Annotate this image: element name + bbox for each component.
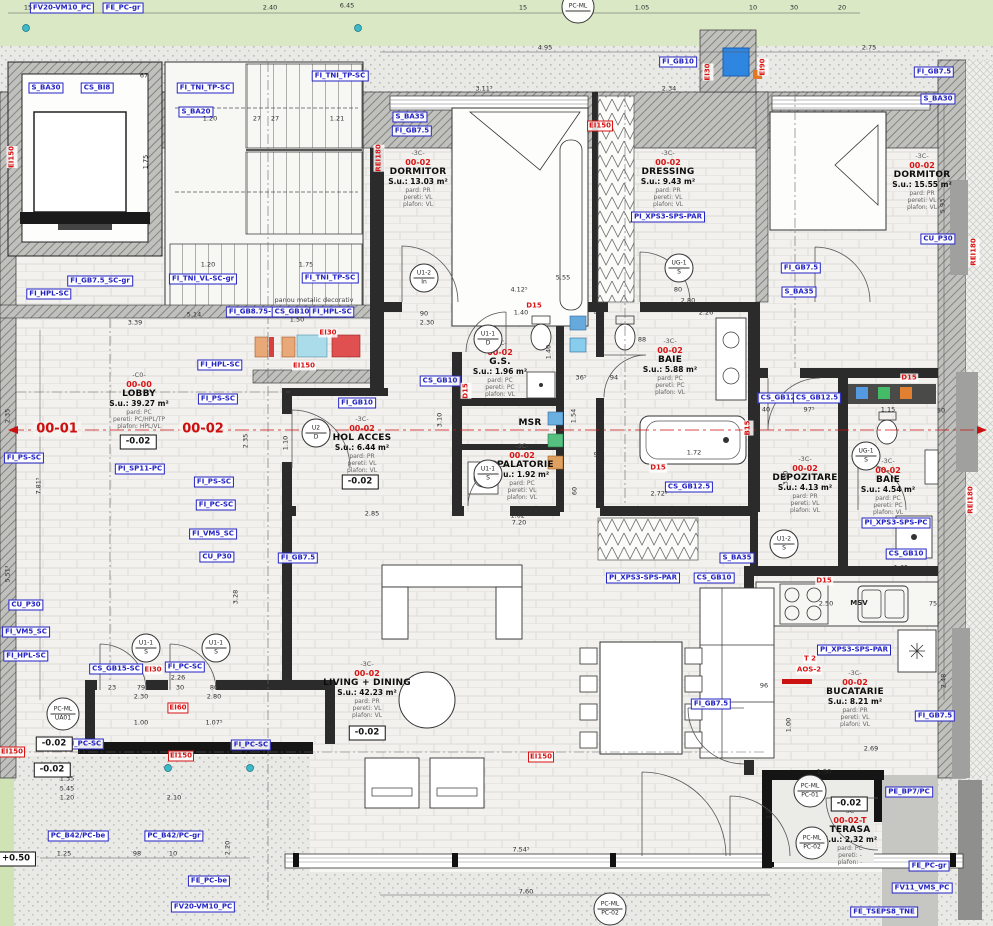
door-tag-code: U1-1 (477, 331, 499, 340)
dimension-text: 15 (24, 5, 32, 12)
door-tag: UG-1S (665, 254, 694, 283)
room-code: 00-02 (353, 158, 483, 167)
room-grade: -3C- (857, 153, 987, 161)
finish-code-label: FI_VM5_SC (189, 529, 237, 540)
dimension-text: 88 (638, 337, 646, 344)
dimension-text: 2.80 (681, 298, 695, 305)
room-code: 00-02 (790, 678, 920, 687)
door-tag-sub: D (305, 434, 327, 442)
dimension-text: 2.34 (662, 86, 676, 93)
dimension-text: 50 (937, 408, 945, 415)
finish-code-label: PI_XPS3-SPS-PC (862, 518, 931, 529)
room-code: 00-02 (457, 451, 587, 460)
dimension-text: 94 (610, 375, 618, 382)
finish-code-label: PI_SP11-PC (115, 464, 165, 475)
fire-rating-label: EI150 (587, 121, 613, 132)
elevation-marker: +0.50 (0, 852, 36, 867)
dimension-text: 1.72 (687, 450, 701, 457)
finish-code-label: FI_GB7.5 (914, 67, 954, 78)
finish-code-label: FI_HPL-SC (309, 307, 354, 318)
dimension-text: 2.75 (862, 45, 876, 52)
dimension-text: 1.75 (299, 262, 313, 269)
fire-rating-label: T 2 (803, 655, 817, 664)
finish-code-label: PC_B42/PC-gr (144, 831, 203, 842)
door-tag-sub: S (855, 457, 877, 465)
dimension-text: 1.54 (571, 409, 578, 423)
fire-rating-label: EI30 (143, 666, 162, 675)
finish-code-label: CU_P30 (920, 234, 955, 245)
dimension-text: 1.15 (881, 407, 895, 414)
dimension-text: 1.10 (283, 436, 290, 450)
finish-code-label: FI_PC-SC (231, 740, 271, 751)
dimension-text: 1.00 (134, 720, 148, 727)
room-label-block: -3C-00-02BAIES.u.: 5.88 m²pard: PCpereti… (605, 338, 735, 396)
room-area: S.u.: 13.03 m² (353, 178, 483, 187)
finish-code-label: PI_XPS3-SPS-PAR (817, 645, 891, 656)
door-tag-code: UG-1 (668, 260, 690, 269)
room-code: 00-02 (823, 466, 953, 475)
section-axis-label: 00-02 (179, 422, 227, 437)
room-label-block: -3C-00-02BUCATARIES.u.: 8.21 m²pard: PRp… (790, 670, 920, 728)
finish-code-label: FI_PS-SC (194, 477, 234, 488)
room-plafon: plafon: VL (790, 721, 920, 728)
room-plafon: plafon: VL (823, 509, 953, 516)
dimension-text: 3.11⁵ (475, 86, 492, 93)
finish-code-label: FI_TNI_VL-SC-gr (169, 274, 237, 285)
dimension-text: 1.07⁵ (205, 720, 222, 727)
room-pard: pard: PR (297, 453, 427, 460)
elevation-marker: -0.02 (349, 726, 386, 741)
room-pard: pard: PR (790, 707, 920, 714)
dimension-text: 98 (133, 851, 141, 858)
finish-code-label: PC_B42/PC-be (48, 831, 109, 842)
fire-rating-label: EI90 (758, 58, 769, 75)
dimension-text: 1.00 (786, 718, 793, 732)
dimension-text: 5.45 (60, 786, 74, 793)
dimension-text: 7.20 (512, 520, 526, 527)
room-label-block: -3C-00-02LIVING + DININGS.u.: 42.23 m²pa… (302, 661, 432, 719)
door-tag: PC-MLUA01 (47, 698, 80, 731)
room-pereti: pereti: VL (790, 714, 920, 721)
fire-rating-label: EI30 (703, 63, 714, 80)
room-code: 00-02 (302, 669, 432, 678)
dimension-text: 1.0 (766, 809, 773, 819)
room-plafon: plafon: VL (857, 204, 987, 211)
door-tag-code: U1-1 (135, 640, 157, 649)
door-tag-sub: PC-02 (800, 844, 825, 852)
finish-code-label: CS_BI8 (81, 83, 114, 94)
dimension-text: 1.25 (57, 851, 71, 858)
finish-code-label: FI_GB7.5 (392, 126, 432, 137)
room-area: S.u.: 8.21 m² (790, 698, 920, 707)
fire-rating-label: EI150 (0, 747, 25, 758)
finish-code-label: FI_GB7.5_SC-gr (67, 276, 133, 287)
dimension-text: 1.50 (290, 317, 304, 324)
finish-code-label: S_BA35 (781, 287, 816, 298)
dimension-text: 1.20 (203, 116, 217, 123)
finish-code-label: PI_XPS3-SPS-PAR (606, 573, 680, 584)
door-tag: U1-1D (474, 325, 503, 354)
door-tag: PC-ML (562, 0, 595, 24)
room-pard: pard: PC (74, 409, 204, 416)
room-pard: pard: PR (857, 190, 987, 197)
fire-rating-label: D15 (461, 383, 472, 399)
fire-rating-label: B15 (743, 420, 754, 435)
annotation-note: panou metalic decorativ (274, 296, 353, 304)
room-plafon: plafon: VL (297, 467, 427, 474)
finish-code-label: FI_HPL-SC (197, 360, 242, 371)
room-label-block: -3C-00-02DORMITORS.u.: 13.03 m²pard: PRp… (353, 150, 483, 208)
door-tag-sub: PC-01 (798, 792, 823, 800)
room-pereti: pereti: VL (297, 460, 427, 467)
room-grade: -3C- (603, 150, 733, 158)
fire-rating-label: EI150 (7, 146, 18, 168)
finish-code-label: CU_P30 (8, 600, 43, 611)
room-grade: -3C- (457, 443, 587, 451)
finish-code-label: FE_PC-be (188, 876, 230, 887)
finish-code-label: FI_TNI_TP-SC (302, 273, 359, 284)
dimension-text: 3.10 (437, 413, 444, 427)
finish-code-label: FE_TSEPS8_TNE (850, 907, 918, 918)
fire-rating-label: REI180 (966, 486, 977, 513)
door-tag-code: U2 (305, 425, 327, 434)
finish-code-label: S_BA30 (28, 83, 63, 94)
door-tag-sub: UA01 (51, 715, 76, 723)
finish-code-label: FI_GB10 (338, 398, 376, 409)
finish-code-label: FI_VM5_SC (2, 627, 50, 638)
dimension-text: 3.28 (233, 590, 240, 604)
annotation-note: MSV (850, 599, 867, 607)
dimension-text: 1.21 (330, 116, 344, 123)
finish-code-label: FI_HPL-SC (3, 651, 48, 662)
dimension-text: 2.64 (841, 482, 848, 496)
elevation-marker: -0.02 (120, 435, 157, 450)
dimension-text: 2.30 (420, 320, 434, 327)
dimension-text: 60 (572, 487, 579, 495)
dimension-text: 5.51³ (5, 565, 12, 582)
dimension-text: 14⁵ (242, 685, 253, 692)
fire-rating-label: EI150 (528, 752, 554, 763)
dimension-text: 2.10 (167, 795, 181, 802)
fire-rating-label: AOS-2 (796, 666, 822, 675)
dimension-text: 2.35 (5, 409, 12, 423)
elevation-marker: -0.02 (36, 737, 73, 752)
finish-code-label: FI_PC-SC (165, 662, 205, 673)
door-tag-sub: S (135, 649, 157, 657)
finish-code-label: CS_GB10 (694, 573, 735, 584)
room-pereti: pereti: VL (353, 194, 483, 201)
dimension-text: 44 (594, 310, 602, 317)
room-pereti: pereti: VL (603, 194, 733, 201)
dimension-text: 5.55 (556, 275, 570, 282)
floorplan-sheet: -C0-00-00LOBBYS.u.: 39.27 m²pard: PCpere… (0, 0, 993, 926)
dimension-text: 3.00 (783, 471, 790, 485)
dimension-text: 1.05 (635, 5, 649, 12)
annotation-layer: -C0-00-00LOBBYS.u.: 39.27 m²pard: PCpere… (0, 0, 993, 926)
door-tag: U1-1S (202, 634, 231, 663)
dimension-text: 2.30 (134, 694, 148, 701)
dimension-text: 2.35 (243, 434, 250, 448)
elevation-marker: -0.02 (34, 763, 71, 778)
dimension-text: 1.50 (817, 769, 831, 776)
dimension-text: 3.39 (128, 320, 142, 327)
room-pard: pard: PR (353, 187, 483, 194)
finish-code-label: FI_GB10 (659, 57, 697, 68)
dimension-text: 7.60 (519, 889, 533, 896)
door-tag-code: PC-ML (566, 3, 591, 12)
door-tag: U1-1S (132, 634, 161, 663)
dimension-text: 1.65 (894, 565, 908, 572)
dimension-text: 97⁵ (804, 407, 815, 414)
door-tag-code: PC-ML (598, 901, 623, 910)
room-area: S.u.: 39.27 m² (74, 400, 204, 409)
dimension-text: 5.93 (940, 199, 947, 213)
dimension-text: 1.20 (60, 795, 74, 802)
door-tag: U1-2S (770, 530, 799, 559)
dimension-text: 10 (169, 851, 177, 858)
finish-code-label: FI_GB7.5 (915, 711, 955, 722)
dimension-text: 2.80 (207, 694, 221, 701)
room-area: S.u.: 15.55 m² (857, 181, 987, 190)
door-tag: PC-MLPC-02 (796, 827, 829, 860)
door-tag: U2D (302, 419, 331, 448)
section-axis-label: 00-01 (33, 422, 81, 437)
dimension-text: 2.48 (941, 674, 948, 688)
room-code: 00-00 (74, 380, 204, 389)
dimension-text: 27 (271, 116, 279, 123)
finish-code-label: FV20-VM10_PC (171, 902, 235, 913)
dimension-text: 75 (929, 601, 937, 608)
dimension-text: 6.45 (340, 3, 354, 10)
door-tag-sub: In (413, 279, 435, 287)
door-tag-sub: PC-02 (598, 910, 623, 918)
dimension-text: 1.20 (201, 262, 215, 269)
dimension-text: 90⁵ (594, 452, 605, 459)
dimension-text: 1.40 (514, 310, 528, 317)
dimension-text: 2.26 (699, 310, 713, 317)
room-pereti: pereti: VL (302, 705, 432, 712)
finish-code-label: FV11_VMS_PC (892, 883, 953, 894)
door-tag-code: PC-ML (51, 706, 76, 715)
finish-code-label: S_BA35 (719, 553, 754, 564)
dimension-text: 5.14 (187, 312, 201, 319)
dimension-text: 79 (137, 685, 145, 692)
dimension-text: 7.54⁵ (512, 847, 529, 854)
dimension-text: 2.50 (819, 601, 833, 608)
fire-rating-label: D15 (900, 374, 918, 383)
dimension-text: 20 (838, 5, 846, 12)
dimension-text: 7.81⁵ (36, 477, 43, 494)
door-tag: U1-1S (474, 460, 503, 489)
dimension-text: 2.20 (225, 841, 232, 855)
finish-code-label: CS_GB15-SC (89, 664, 143, 675)
room-area: S.u.: 42.23 m² (302, 689, 432, 698)
door-tag: UG-1S (852, 442, 881, 471)
finish-code-label: FI_GB7.5 (691, 699, 731, 710)
fire-rating-label: REI180 (374, 144, 385, 171)
finish-code-label: FI_PS-SC (198, 394, 238, 405)
finish-code-label: CS_GB12.5 (793, 393, 841, 404)
room-label-block: -3C-00-02DRESSINGS.u.: 9.43 m²pard: PRpe… (603, 150, 733, 208)
dimension-text: 67 (140, 73, 148, 80)
room-pereti: pereti: PC (605, 382, 735, 389)
room-pereti: pereti: PC (823, 502, 953, 509)
room-plafon: plafon: VL (457, 494, 587, 501)
room-grade: -3C- (823, 458, 953, 466)
finish-code-label: FI_PC-SC (196, 500, 236, 511)
dimension-text: 27 (253, 116, 261, 123)
finish-code-label: FI_PS-SC (4, 453, 44, 464)
finish-code-label: CS_GB10 (886, 549, 927, 560)
door-tag-sub: S (477, 475, 499, 483)
elevation-marker: -0.02 (831, 797, 868, 812)
finish-code-label: FE_PC-gr (909, 861, 950, 872)
fire-rating-label: EI150 (168, 751, 194, 762)
door-tag-sub: S (668, 269, 690, 277)
room-grade: -3C- (302, 661, 432, 669)
dimension-text: 1.40 (546, 345, 553, 359)
door-tag: PC-MLPC-02 (594, 893, 627, 926)
door-tag-code: PC-ML (798, 783, 823, 792)
room-code: 00-02-T (785, 816, 915, 825)
room-plafon: plafon: VL (603, 201, 733, 208)
finish-code-label: FI_HPL-SC (26, 289, 71, 300)
door-tag: U1-2In (410, 264, 439, 293)
dimension-text: 96 (760, 683, 768, 690)
finish-code-label: FI_GB7.5 (781, 263, 821, 274)
door-tag-code: UG-1 (855, 448, 877, 457)
dimension-text: 30 (790, 5, 798, 12)
door-tag-code: U1-2 (773, 536, 795, 545)
dimension-text: 23 (108, 685, 116, 692)
fire-rating-label: EI60 (167, 703, 188, 714)
room-area: S.u.: 5.88 m² (605, 366, 735, 375)
dimension-text: 15 (519, 5, 527, 12)
room-pereti: pereti: VL (857, 197, 987, 204)
fire-rating-label: D15 (815, 577, 833, 586)
door-tag-code: U1-1 (477, 466, 499, 475)
dimension-text: 40 (762, 407, 770, 414)
dimension-text: 90 (420, 311, 428, 318)
finish-code-label: PE_BP7/PC (885, 787, 933, 798)
fire-rating-label: EI30 (318, 329, 337, 338)
dimension-text: 36⁵ (576, 375, 587, 382)
fire-rating-label: EI150 (292, 362, 316, 371)
door-tag: PC-MLPC-01 (794, 775, 827, 808)
room-area: S.u.: 9.43 m² (603, 178, 733, 187)
room-code: 00-02 (603, 158, 733, 167)
dimension-text: 1.75 (143, 155, 150, 169)
door-tag-sub: S (205, 649, 227, 657)
finish-code-label: FV20-VM10_PC (30, 3, 94, 14)
room-plafon: plafon: VL (302, 712, 432, 719)
finish-code-label: CS_GB12.5 (665, 482, 713, 493)
dimension-text: 80 (210, 685, 218, 692)
room-plafon: plafon: - (785, 859, 915, 866)
door-tag-sub: S (773, 545, 795, 553)
room-code: 00-02 (857, 161, 987, 170)
fire-rating-label: REI180 (969, 238, 980, 265)
dimension-text: 2.85 (365, 511, 379, 518)
finish-code-label: FI_TNI_TP-SC (177, 83, 234, 94)
room-pard: pard: PR (603, 187, 733, 194)
dimension-text: 10 (749, 5, 757, 12)
door-tag-code: U1-1 (205, 640, 227, 649)
finish-code-label: FE_PC-gr (103, 3, 144, 14)
finish-code-label: FI_TNI_TP-SC (312, 71, 369, 82)
room-grade: -C0- (74, 372, 204, 380)
door-tag-sub: D (477, 340, 499, 348)
dimension-text: 80 (674, 287, 682, 294)
dimension-text: 2.72⁵ (650, 491, 667, 498)
finish-code-label: S_BA30 (920, 94, 955, 105)
dimension-text: 4.95 (538, 45, 552, 52)
finish-code-label: CU_P30 (199, 552, 234, 563)
room-label-block: -3C-00-02DORMITORS.u.: 15.55 m²pard: PRp… (857, 153, 987, 211)
dimension-text: 4.12⁵ (510, 287, 527, 294)
dimension-text: 2.26 (171, 675, 185, 682)
room-grade: -3C- (605, 338, 735, 346)
dimension-text: 30 (176, 685, 184, 692)
dimension-text: 2.40 (263, 5, 277, 12)
room-plafon: plafon: VL (435, 391, 565, 398)
finish-code-label: PI_XPS3-SPS-PAR (631, 212, 705, 223)
room-code: 00-02 (605, 346, 735, 355)
room-pard: pard: PC (605, 375, 735, 382)
finish-code-label: FI_GB7.5 (278, 553, 318, 564)
elevation-marker: -0.02 (342, 475, 379, 490)
door-tag-code: PC-ML (800, 835, 825, 844)
room-pereti: pereti: VL (457, 487, 587, 494)
dimension-text: 2.69 (864, 746, 878, 753)
room-pard: pard: PR (302, 698, 432, 705)
fire-rating-label: D15 (649, 464, 667, 473)
room-plafon: plafon: VL (605, 389, 735, 396)
room-grade: -3C- (353, 150, 483, 158)
finish-code-label: S_BA35 (392, 112, 427, 123)
finish-code-label: CS_GB10 (420, 376, 461, 387)
room-plafon: plafon: VL (353, 201, 483, 208)
door-tag-code: U1-2 (413, 270, 435, 279)
